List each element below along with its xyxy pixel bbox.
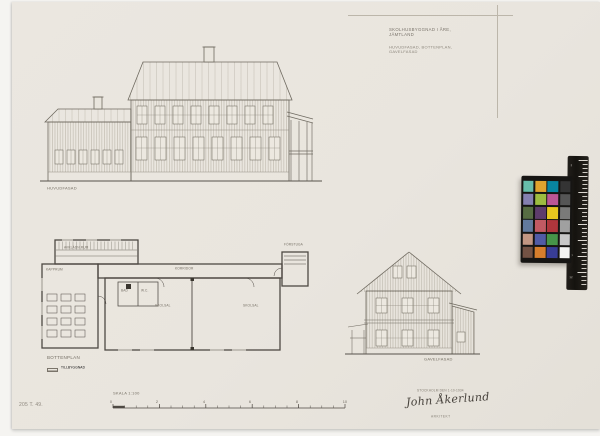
color-patch <box>523 194 534 206</box>
color-patch <box>548 181 559 193</box>
room-label-bath: BAD <box>121 289 128 293</box>
scale-number: 8 <box>296 400 298 404</box>
room-label-cloakroom: AVKLÄDN.RUM <box>64 246 89 250</box>
legend: TILLBYGGNAD <box>47 366 109 373</box>
color-patch <box>560 207 571 219</box>
color-patch <box>523 207 534 219</box>
gable-elevation-label: GAVELFASAD <box>424 357 453 362</box>
color-patch <box>535 180 546 192</box>
color-patch <box>547 220 558 232</box>
title-line-1: SKOLHUSBYGGNAD I ÅRE, JÄMTLAND <box>389 27 459 37</box>
room-label-kapprum: KAPPRUM <box>46 268 63 272</box>
room-label-corridor: KORRIDOR <box>175 267 193 271</box>
color-grid <box>522 180 570 258</box>
scanned-drawing-sheet: SKOLHUSBYGGNAD I ÅRE, JÄMTLAND HUVUDFASA… <box>0 0 600 436</box>
color-patch <box>559 247 570 259</box>
color-patch <box>522 247 533 259</box>
color-patch <box>523 233 534 245</box>
color-checker-card <box>521 176 573 264</box>
color-patch <box>535 194 546 206</box>
ruler-number: 12 <box>569 276 572 279</box>
color-patch <box>547 234 558 246</box>
room-label-classroom-1: SKOLSAL <box>155 304 171 308</box>
room-label-entry: FÖRSTUGA <box>284 243 303 247</box>
color-patch <box>535 220 546 232</box>
color-patch <box>535 207 546 219</box>
color-patch <box>535 234 546 246</box>
title-block: SKOLHUSBYGGNAD I ÅRE, JÄMTLAND HUVUDFASA… <box>389 27 529 63</box>
color-patch <box>523 220 534 232</box>
color-patch <box>560 221 571 233</box>
front-elevation <box>40 47 322 181</box>
color-patch <box>560 194 571 206</box>
legend-label: TILLBYGGNAD <box>61 366 85 370</box>
scale-number: 2 <box>156 400 158 404</box>
scale-number: 6 <box>249 400 251 404</box>
color-patch <box>547 207 558 219</box>
signature-role: ARKITEKT <box>431 415 451 419</box>
archive-number: 205 T. 49. <box>19 402 43 408</box>
color-patch <box>559 234 570 246</box>
ruler-number: 2 <box>571 164 574 167</box>
front-elevation-label: HUVUDFASAD <box>47 186 77 191</box>
floor-plan <box>41 239 308 352</box>
color-patch <box>535 247 546 259</box>
gable-elevation <box>345 252 480 354</box>
scale-number: 10 <box>343 400 347 404</box>
room-label-wc: W.C. <box>141 289 149 293</box>
ruler-major-ticks <box>577 160 587 286</box>
scale-bar <box>113 404 345 408</box>
color-patch <box>548 194 559 206</box>
legend-hatch-swatch <box>47 368 58 372</box>
color-patch <box>547 247 558 259</box>
plan-label: BOTTENPLAN <box>47 355 80 361</box>
scale-number: 4 <box>203 400 205 404</box>
scale-numbers: 0246810 <box>109 397 349 404</box>
scale-number: 0 <box>110 400 112 404</box>
room-label-classroom-2: SKOLSAL <box>243 304 259 308</box>
title-line-2: HUVUDFASAD, BOTTENPLAN, GAVELFASAD <box>389 45 459 54</box>
color-patch <box>560 181 571 193</box>
scale-label: SKALA 1:100 <box>113 391 140 396</box>
color-patch <box>523 180 534 192</box>
